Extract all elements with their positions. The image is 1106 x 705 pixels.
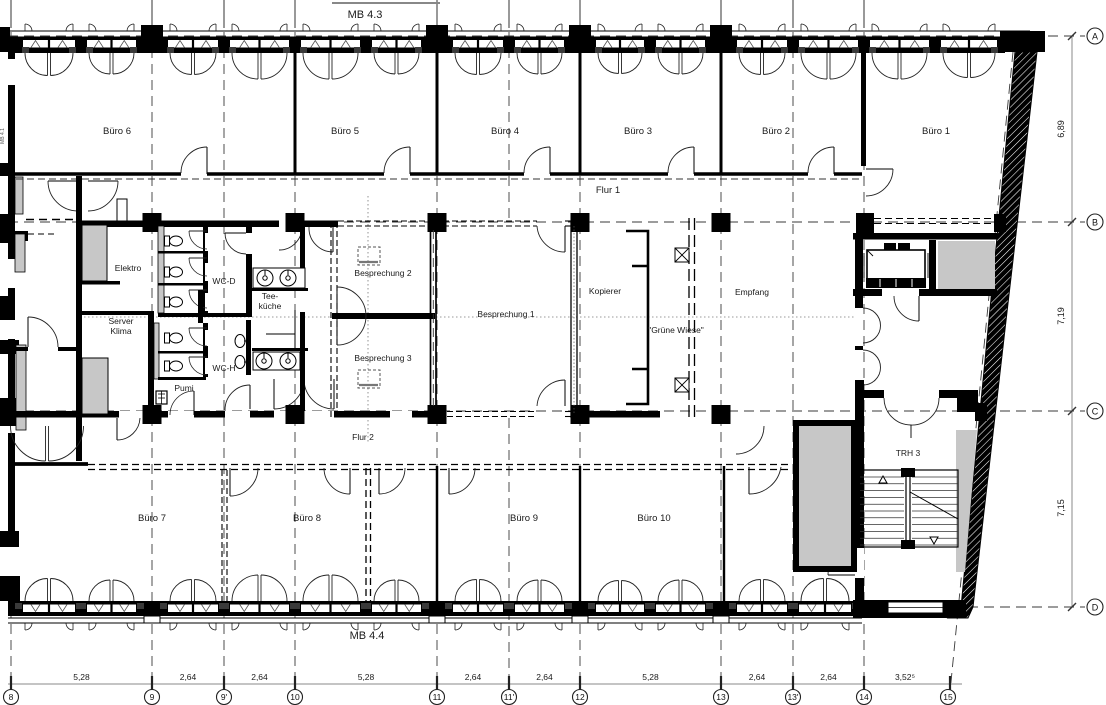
svg-text:TRH 3: TRH 3 <box>896 448 921 458</box>
svg-text:2,64: 2,64 <box>180 672 197 682</box>
svg-text:Kopierer: Kopierer <box>589 286 621 296</box>
svg-text:Büro 4: Büro 4 <box>491 126 519 137</box>
svg-text:10: 10 <box>290 692 300 702</box>
svg-text:Elektro: Elektro <box>115 263 142 273</box>
svg-text:Büro 6: Büro 6 <box>103 126 131 137</box>
svg-text:MB 4.3: MB 4.3 <box>348 9 383 21</box>
svg-text:2,64: 2,64 <box>536 672 553 682</box>
svg-text:WC-D: WC-D <box>212 276 235 286</box>
svg-text:2,64: 2,64 <box>251 672 268 682</box>
svg-text:Büro 1: Büro 1 <box>922 126 950 137</box>
svg-text:Büro 10: Büro 10 <box>637 513 670 524</box>
svg-text:Büro 3: Büro 3 <box>624 126 652 137</box>
svg-text:2,64: 2,64 <box>465 672 482 682</box>
svg-text:12: 12 <box>575 692 585 702</box>
svg-text:11: 11 <box>433 692 442 702</box>
svg-text:Besprechung 3: Besprechung 3 <box>354 353 411 363</box>
svg-text:Besprechung 2: Besprechung 2 <box>354 268 411 278</box>
svg-text:14: 14 <box>859 692 869 702</box>
svg-text:5,28: 5,28 <box>73 672 90 682</box>
svg-text:MB 4.1: MB 4.1 <box>0 128 6 144</box>
svg-text:Server: Server <box>108 316 133 326</box>
svg-text:2,64: 2,64 <box>749 672 766 682</box>
svg-text:5,28: 5,28 <box>358 672 375 682</box>
svg-text:11': 11' <box>504 692 515 702</box>
svg-text:Büro 9: Büro 9 <box>510 513 538 524</box>
svg-text:A: A <box>1092 32 1098 42</box>
svg-text:Flur 2: Flur 2 <box>352 432 374 442</box>
svg-text:Pumi: Pumi <box>174 383 193 393</box>
svg-text:Empfang: Empfang <box>735 287 769 297</box>
svg-text:2,64: 2,64 <box>820 672 837 682</box>
svg-text:Büro 5: Büro 5 <box>331 126 359 137</box>
svg-text:Besprechung 1: Besprechung 1 <box>477 309 534 319</box>
svg-text:8: 8 <box>9 692 14 702</box>
svg-text:MB 4.4: MB 4.4 <box>350 630 385 642</box>
svg-text:B: B <box>1092 218 1098 228</box>
svg-text:WC-H: WC-H <box>212 363 235 373</box>
svg-text:Büro 2: Büro 2 <box>762 126 790 137</box>
svg-text:13': 13' <box>787 692 798 702</box>
svg-text:Flur 1: Flur 1 <box>596 185 620 196</box>
svg-text:15: 15 <box>943 692 953 702</box>
svg-text:küche: küche <box>259 301 282 311</box>
svg-text:5,28: 5,28 <box>642 672 659 682</box>
svg-text:Klima: Klima <box>110 326 132 336</box>
svg-text:Büro 8: Büro 8 <box>293 513 321 524</box>
svg-text:6,89: 6,89 <box>1056 120 1066 138</box>
svg-text:9: 9 <box>150 692 155 702</box>
svg-text:D: D <box>1092 603 1099 613</box>
svg-text:13: 13 <box>716 692 726 702</box>
svg-text:9': 9' <box>221 692 228 702</box>
svg-text:Büro 7: Büro 7 <box>138 513 166 524</box>
svg-text:"Grüne Wiese": "Grüne Wiese" <box>648 325 704 335</box>
svg-text:3,52⁵: 3,52⁵ <box>895 672 915 682</box>
svg-text:Tee-: Tee- <box>262 291 279 301</box>
svg-text:7,19: 7,19 <box>1056 307 1066 325</box>
svg-text:C: C <box>1092 407 1099 417</box>
svg-text:7,15: 7,15 <box>1056 499 1066 517</box>
